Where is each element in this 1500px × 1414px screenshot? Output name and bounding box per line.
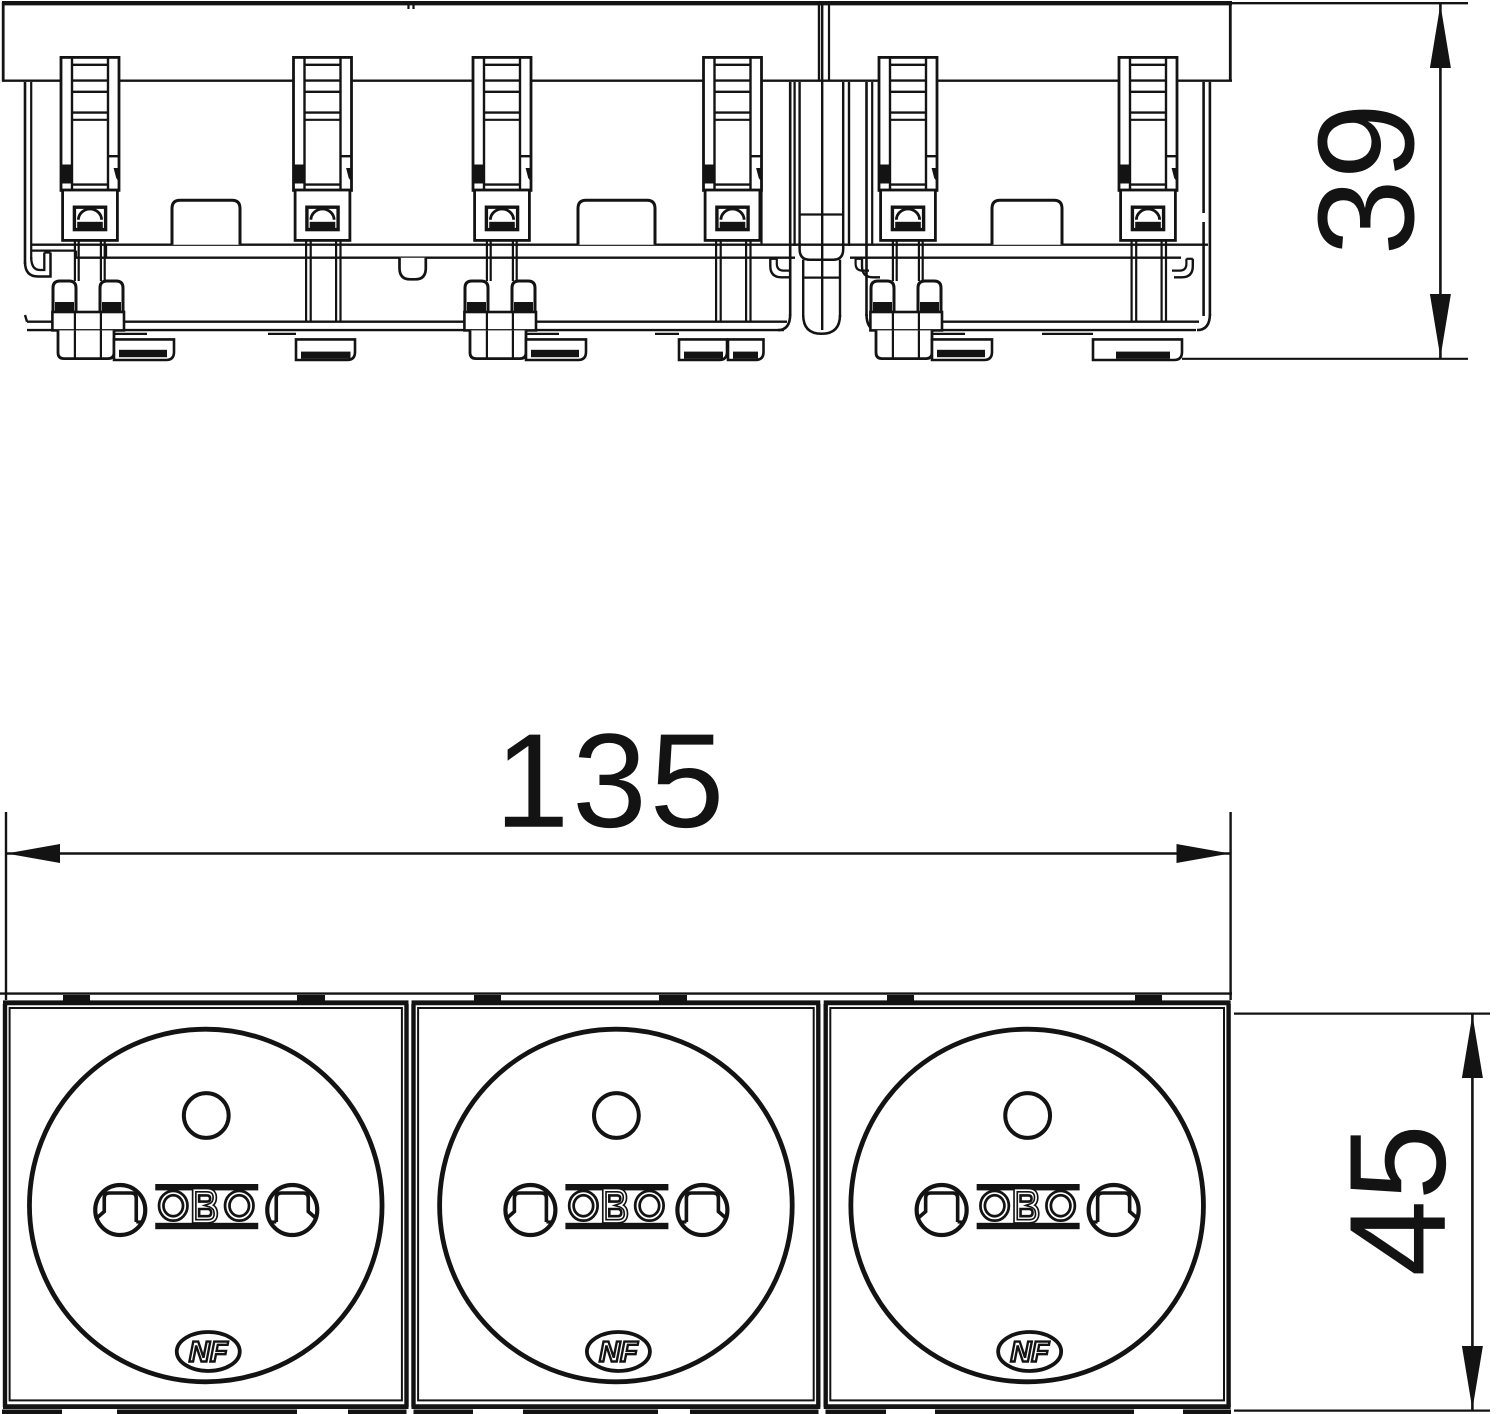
svg-text:39: 39 bbox=[1290, 103, 1443, 255]
svg-text:135: 135 bbox=[495, 707, 728, 856]
svg-text:NF: NF bbox=[599, 1337, 639, 1369]
svg-text:NF: NF bbox=[1010, 1337, 1050, 1369]
svg-text:45: 45 bbox=[1322, 1124, 1475, 1276]
svg-text:NF: NF bbox=[189, 1337, 229, 1369]
